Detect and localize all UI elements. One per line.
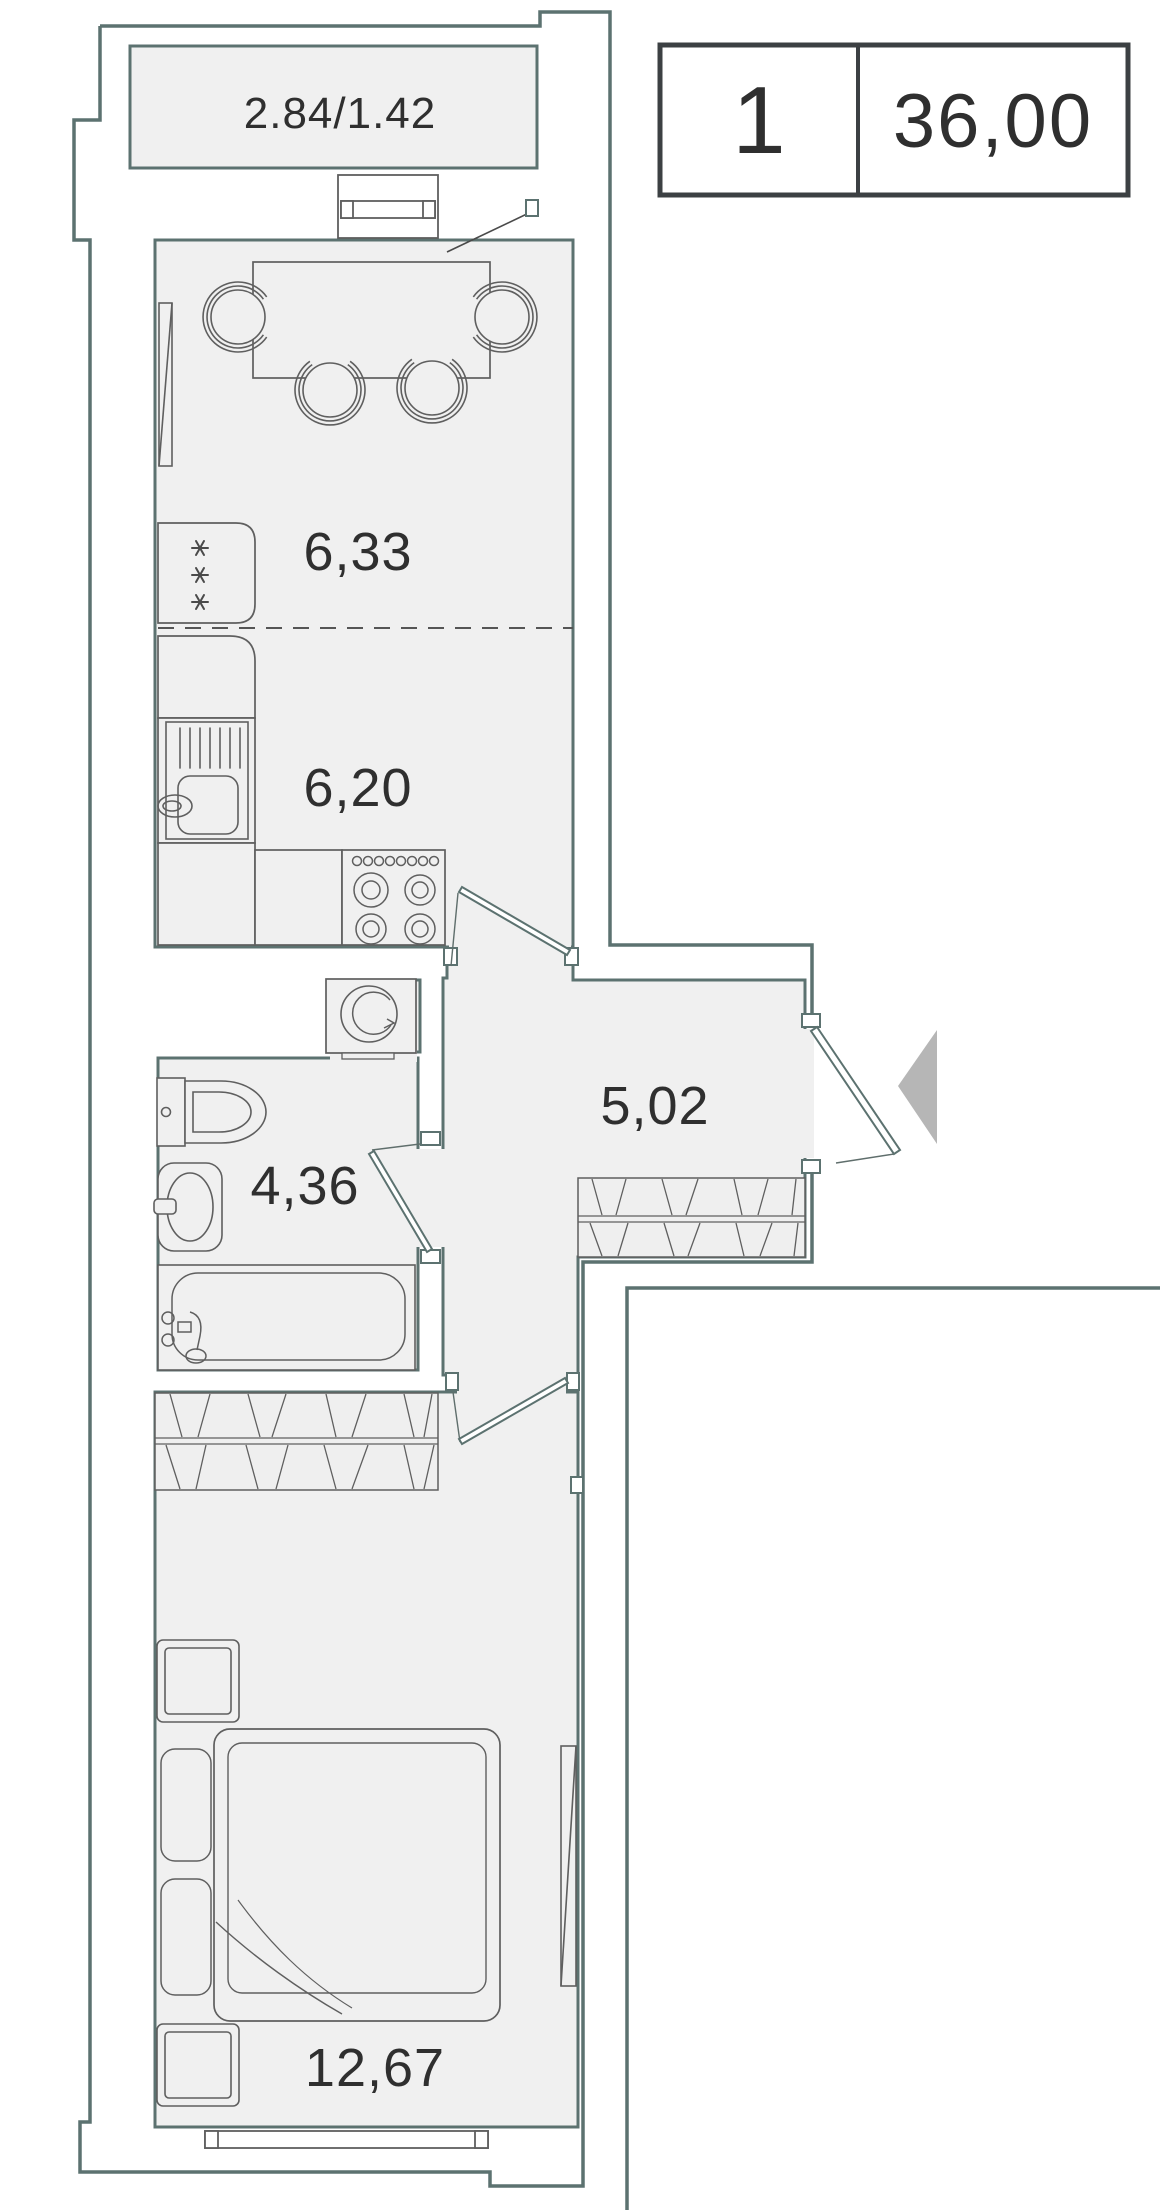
bedroom-window [205,2131,488,2148]
stove-icon [342,850,445,945]
neighbor-boundary [627,1288,1160,2210]
nightstand-icon [157,1640,239,1722]
wall-notch [571,1477,583,1493]
hallway-wardrobe-icon [578,1178,805,1257]
living-area-label: 6,33 [303,522,412,582]
door-leaf [811,1027,900,1154]
bedroom-area-label: 12,67 [305,2038,445,2098]
floor-plan: 2.84/1.42 6,33 6,20 5,02 4,36 12,67 1 36… [0,0,1160,2210]
radiator-icon [159,303,172,466]
pillow-icon [161,1879,211,1995]
nightstand-icon [157,2024,239,2106]
legend-rooms-count: 1 [732,67,785,174]
washbasin-icon [154,1163,222,1251]
entry-arrow-icon [898,1030,937,1144]
legend: 1 36,00 [660,45,1128,195]
bathtub-icon [158,1265,415,1370]
hallway-area-label: 5,02 [600,1076,709,1136]
entry-door [802,1014,937,1173]
dresser-icon [561,1746,576,1986]
bathroom-area-label: 4,36 [250,1156,359,1216]
balcony-area-label: 2.84/1.42 [244,89,437,138]
toilet-icon [157,1078,266,1146]
hallway-floor [443,952,805,1375]
fridge-icon [158,523,255,623]
bedroom-wardrobe-icon [155,1393,438,1490]
balcony-window [338,175,438,238]
legend-total-area: 36,00 [893,79,1093,164]
washing-machine-icon [326,979,416,1059]
pillow-icon [161,1749,211,1861]
kitchen-area-label: 6,20 [303,758,412,818]
